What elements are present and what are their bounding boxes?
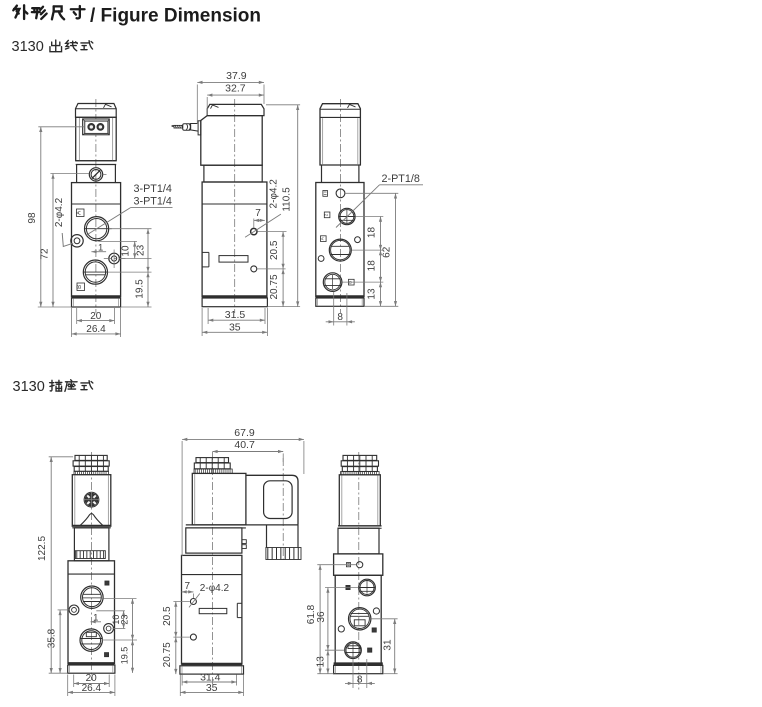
- svg-text:8: 8: [337, 312, 343, 323]
- svg-text:3-PT1/4: 3-PT1/4: [134, 196, 172, 208]
- svg-text:10: 10: [121, 245, 132, 257]
- svg-text:7: 7: [185, 581, 191, 592]
- svg-text:7: 7: [255, 208, 261, 219]
- svg-text:20.5: 20.5: [162, 606, 173, 626]
- svg-text:20: 20: [90, 311, 102, 322]
- svg-text:35: 35: [229, 321, 241, 333]
- svg-text:72: 72: [39, 248, 50, 260]
- svg-text:20.75: 20.75: [269, 274, 280, 299]
- svg-text:19.5: 19.5: [119, 647, 129, 665]
- svg-text:20.5: 20.5: [269, 240, 280, 260]
- svg-text:35.8: 35.8: [46, 628, 57, 648]
- svg-text:2-PT1/8: 2-PT1/8: [382, 173, 420, 185]
- svg-text:67.9: 67.9: [234, 427, 255, 439]
- svg-text:98: 98: [27, 212, 38, 224]
- svg-text:23: 23: [136, 244, 147, 256]
- svg-text:26.4: 26.4: [82, 683, 102, 694]
- svg-text:13: 13: [316, 656, 327, 668]
- svg-text:A: A: [77, 211, 83, 215]
- svg-text:31.5: 31.5: [225, 309, 246, 321]
- svg-text:18: 18: [367, 260, 378, 272]
- svg-text:122.5: 122.5: [37, 536, 48, 561]
- svg-text:18: 18: [367, 227, 378, 239]
- svg-text:32.7: 32.7: [225, 83, 246, 95]
- svg-text:B: B: [77, 285, 83, 289]
- svg-text:3130: 3130: [13, 379, 45, 395]
- svg-text:2-φ4.2: 2-φ4.2: [200, 583, 230, 594]
- svg-text:23: 23: [120, 615, 130, 625]
- svg-text:26.4: 26.4: [86, 324, 106, 335]
- svg-text:3-PT1/4: 3-PT1/4: [134, 183, 172, 195]
- svg-text:19.5: 19.5: [134, 279, 145, 299]
- svg-text:2-φ4.2: 2-φ4.2: [54, 197, 65, 227]
- svg-text:3130: 3130: [12, 39, 44, 55]
- svg-text:20.75: 20.75: [162, 642, 173, 667]
- svg-text:35: 35: [206, 682, 218, 694]
- svg-text:40.7: 40.7: [234, 439, 255, 451]
- svg-text:/ Figure Dimension: / Figure Dimension: [90, 6, 261, 27]
- svg-text:110.5: 110.5: [281, 187, 292, 212]
- svg-text:36: 36: [316, 611, 327, 623]
- svg-text:A: A: [320, 237, 325, 240]
- svg-text:37.9: 37.9: [226, 70, 247, 82]
- svg-text:2-φ4.2: 2-φ4.2: [268, 179, 279, 209]
- svg-text:13: 13: [367, 288, 378, 300]
- svg-text:8: 8: [357, 674, 363, 685]
- svg-text:62: 62: [382, 246, 393, 258]
- svg-text:31: 31: [382, 639, 393, 651]
